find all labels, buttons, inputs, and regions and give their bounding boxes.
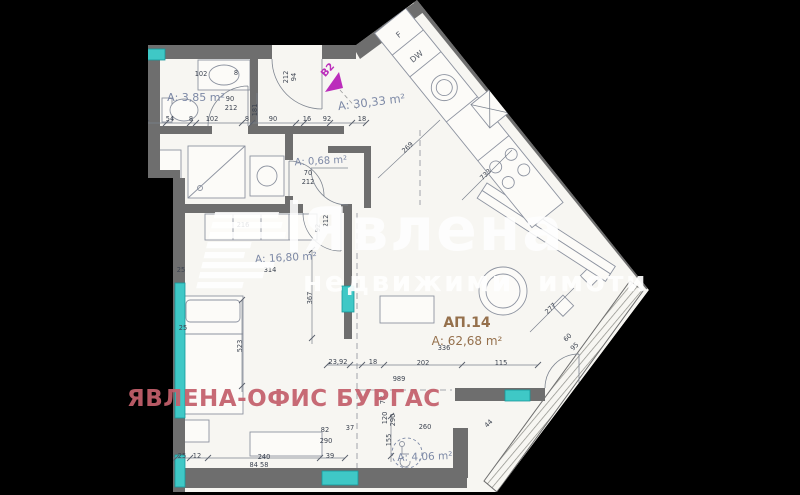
dimension-label: 54: [166, 115, 174, 123]
dimension-label: 155: [385, 434, 393, 447]
dimension-label: 25: [178, 452, 186, 460]
dimension-label: 212: [225, 104, 238, 112]
shower-room-wall-a: [285, 134, 293, 160]
dimension-label: 23,92: [329, 358, 348, 366]
watermark-divider: [290, 200, 298, 252]
dimension-label: 18: [369, 358, 377, 366]
dimension-label: 115: [495, 359, 508, 367]
dimension-label: 8: [189, 115, 193, 123]
terrace-top-wall: [455, 388, 545, 401]
dimension-label: 37: [346, 424, 354, 432]
dimension-label: 8: [234, 69, 238, 77]
room-area-label: АП.14: [443, 315, 491, 331]
dimension-label: 290: [320, 437, 333, 445]
watermark-brand: Явлена: [302, 195, 565, 265]
dimension-label: 8: [245, 115, 249, 123]
washing-machine: [250, 156, 284, 196]
room-area-label: А: 3,85 m²: [167, 91, 225, 104]
window-marker: [147, 49, 165, 60]
watermark-tagline: недвижими имоти: [303, 265, 648, 298]
dimension-label: 523: [236, 340, 244, 353]
window-marker: [322, 471, 358, 485]
office-stamp: ЯВЛЕНА-ОФИС БУРГАС: [127, 386, 441, 412]
dimension-label: 240: [258, 453, 271, 461]
dimension-label: 102: [206, 115, 219, 123]
floorplan-canvas: F DW: [0, 0, 800, 495]
floorplan-screenshot: F DW: [0, 0, 800, 495]
dimension-label: 290: [389, 414, 397, 427]
dimension-label: 102: [195, 70, 208, 78]
closet-top-wall: [328, 146, 370, 153]
dimension-label: 212: [302, 178, 315, 186]
room-area-label: А: 4,06 m²: [397, 450, 453, 464]
left-wall-upper: [148, 45, 160, 178]
dimension-label: 25: [177, 266, 185, 274]
dimension-label: 16: [303, 115, 311, 123]
terrace-side-wall: [453, 428, 468, 478]
dimension-label: 70: [304, 169, 312, 177]
dimension-label: 202: [417, 359, 430, 367]
dimension-label: 84 58: [250, 461, 269, 469]
dimension-label: 120: [381, 412, 389, 425]
living-cabinet: [380, 296, 434, 323]
top-wall-right: [322, 45, 356, 59]
dimension-label: 18: [358, 115, 366, 123]
dimension-label: 181: [251, 104, 259, 117]
dimension-label: 39: [326, 452, 334, 460]
dimension-label: 12: [193, 452, 201, 460]
nightstand: [183, 420, 209, 442]
dimension-label: 92: [323, 115, 331, 123]
dimension-label: 989: [393, 375, 406, 383]
window-marker: [505, 390, 530, 401]
dimension-label: 82: [321, 426, 329, 434]
room-area-label: А: 62,68 m²: [432, 334, 503, 348]
dimension-label: 25: [179, 324, 187, 332]
dimension-label: 94: [290, 73, 298, 81]
bottom-wall: [175, 468, 467, 488]
dimension-label: 212: [282, 71, 290, 84]
bathroom-bottom-wall-a: [150, 126, 212, 134]
bathroom-bottom-wall-b: [248, 126, 344, 134]
dimension-label: 90: [226, 95, 234, 103]
dimension-label: 260: [419, 423, 432, 431]
dimension-label: 90: [269, 115, 277, 123]
